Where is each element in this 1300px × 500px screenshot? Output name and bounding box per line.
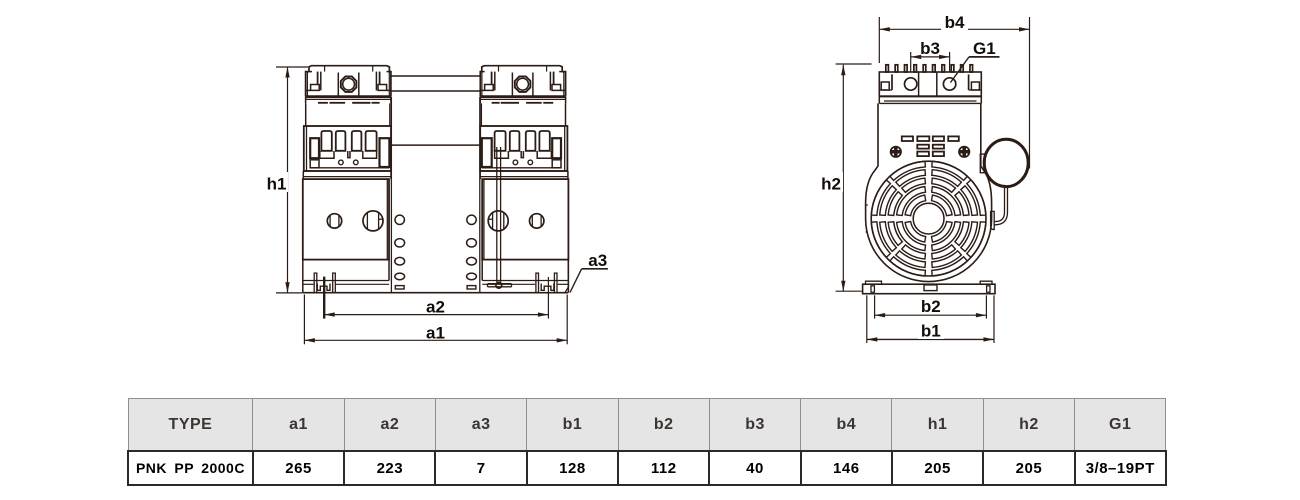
svg-text:b2: b2: [921, 297, 941, 316]
svg-text:b1: b1: [921, 322, 941, 341]
svg-text:a1: a1: [426, 323, 445, 342]
svg-text:b3: b3: [920, 39, 940, 58]
svg-text:h1: h1: [267, 175, 287, 194]
svg-text:a2: a2: [426, 298, 445, 317]
svg-text:a3: a3: [588, 251, 607, 270]
svg-text:b4: b4: [945, 13, 965, 32]
svg-text:h2: h2: [821, 175, 841, 194]
svg-text:G1: G1: [973, 39, 996, 58]
